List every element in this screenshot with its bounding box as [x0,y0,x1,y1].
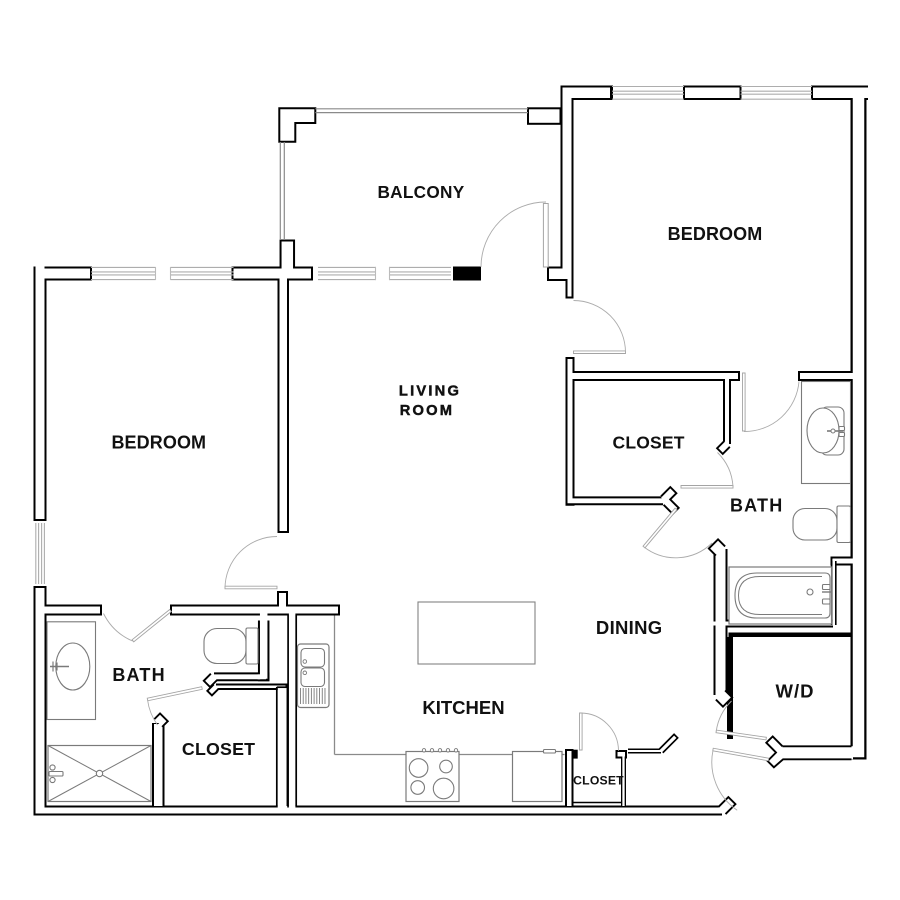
svg-text:BALCONY: BALCONY [377,182,464,202]
svg-text:CLOSET: CLOSET [613,432,685,452]
svg-text:CLOSET: CLOSET [573,773,624,787]
svg-text:BEDROOM: BEDROOM [668,224,763,244]
svg-text:CLOSET: CLOSET [182,739,255,759]
svg-text:LIVING: LIVING [399,383,461,399]
svg-text:ROOM: ROOM [400,403,455,419]
svg-text:KITCHEN: KITCHEN [422,697,504,718]
svg-text:BATH: BATH [112,665,165,685]
svg-text:BATH: BATH [730,496,783,516]
svg-text:DINING: DINING [596,617,663,638]
svg-text:W/D: W/D [776,680,815,701]
svg-text:BEDROOM: BEDROOM [111,433,206,453]
